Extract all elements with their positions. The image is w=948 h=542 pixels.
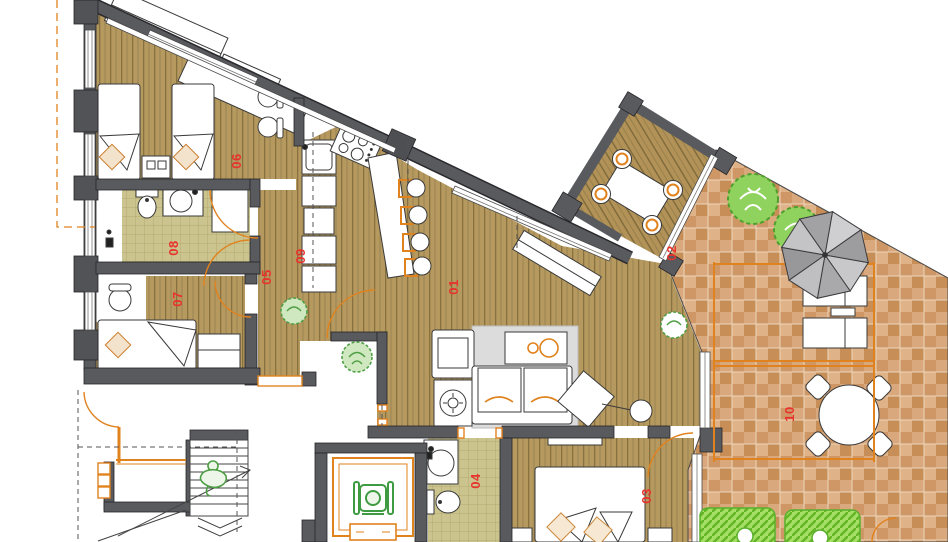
pilaster: [74, 176, 98, 200]
wall: [96, 179, 250, 190]
armchair-icon: [432, 330, 474, 378]
kitchen-cabinets: [302, 140, 336, 292]
cabinet: [98, 463, 110, 474]
elevator-wall: [415, 453, 427, 542]
stairs-icon: [98, 440, 250, 541]
pilaster: [74, 256, 98, 292]
elevator-wall: [315, 453, 327, 542]
room-label-08: 08: [166, 240, 181, 255]
nightstand-icon: [142, 156, 170, 178]
wall: [96, 262, 260, 274]
stair-arrow: [98, 510, 186, 541]
room-label-01: 01: [446, 279, 461, 294]
tree-icon: [728, 174, 778, 224]
window: [85, 30, 95, 88]
wall: [648, 426, 670, 438]
door-swing-icon: [84, 392, 119, 427]
cabinet: [98, 487, 110, 498]
window: [85, 200, 95, 256]
wall: [84, 368, 260, 384]
shaft-floor: [96, 188, 122, 263]
bed-icon: [172, 84, 214, 180]
plant-icon: [342, 342, 372, 372]
coffee-table-icon: [505, 332, 567, 364]
room-label-04: 04: [468, 473, 483, 489]
toilet-icon: [136, 188, 158, 218]
plant-icon: [281, 298, 307, 324]
room-label-03: 03: [639, 488, 654, 503]
window: [85, 134, 95, 176]
nightstand-icon: [648, 528, 672, 542]
door-jamb: [496, 428, 502, 438]
pilaster: [74, 0, 98, 24]
window: [85, 292, 95, 330]
entrance-threshold: [258, 376, 302, 386]
room-label-05: 05: [259, 269, 274, 284]
elevator-wall: [315, 443, 427, 453]
room-label-06: 06: [229, 153, 244, 168]
double-bed-icon: [535, 467, 645, 542]
room-label-02: 02: [664, 245, 679, 260]
wall: [700, 428, 722, 452]
sofa-icon: [472, 366, 572, 424]
room-label-07: 07: [170, 291, 185, 306]
stair-direction-chevron: [198, 518, 242, 528]
plant-icon: [661, 312, 687, 338]
stair-wall: [190, 430, 248, 440]
floor-plan: 01020304050607080910: [0, 0, 948, 542]
room-label-10: 10: [782, 406, 797, 421]
wall: [377, 332, 387, 404]
wall: [500, 438, 512, 542]
chair-icon: [109, 284, 131, 311]
bed-icon: [98, 320, 196, 370]
toilet-icon: [424, 490, 460, 514]
wall: [250, 179, 260, 207]
sink-icon: [163, 186, 203, 216]
nightstand-icon: [198, 334, 240, 368]
floor-plan-page: 01020304050607080910: [0, 0, 948, 542]
shower-icon: [212, 186, 248, 232]
bed-icon: [98, 84, 140, 180]
wall: [245, 274, 257, 284]
wall: [502, 426, 614, 438]
pilaster: [74, 90, 98, 132]
cabinet: [98, 475, 110, 486]
pilaster: [74, 330, 98, 360]
room-label-09: 09: [293, 248, 308, 263]
wall: [302, 372, 316, 386]
sink-icon: [424, 440, 458, 484]
washing-machine-icon: [434, 380, 472, 426]
door-jamb: [458, 428, 464, 438]
